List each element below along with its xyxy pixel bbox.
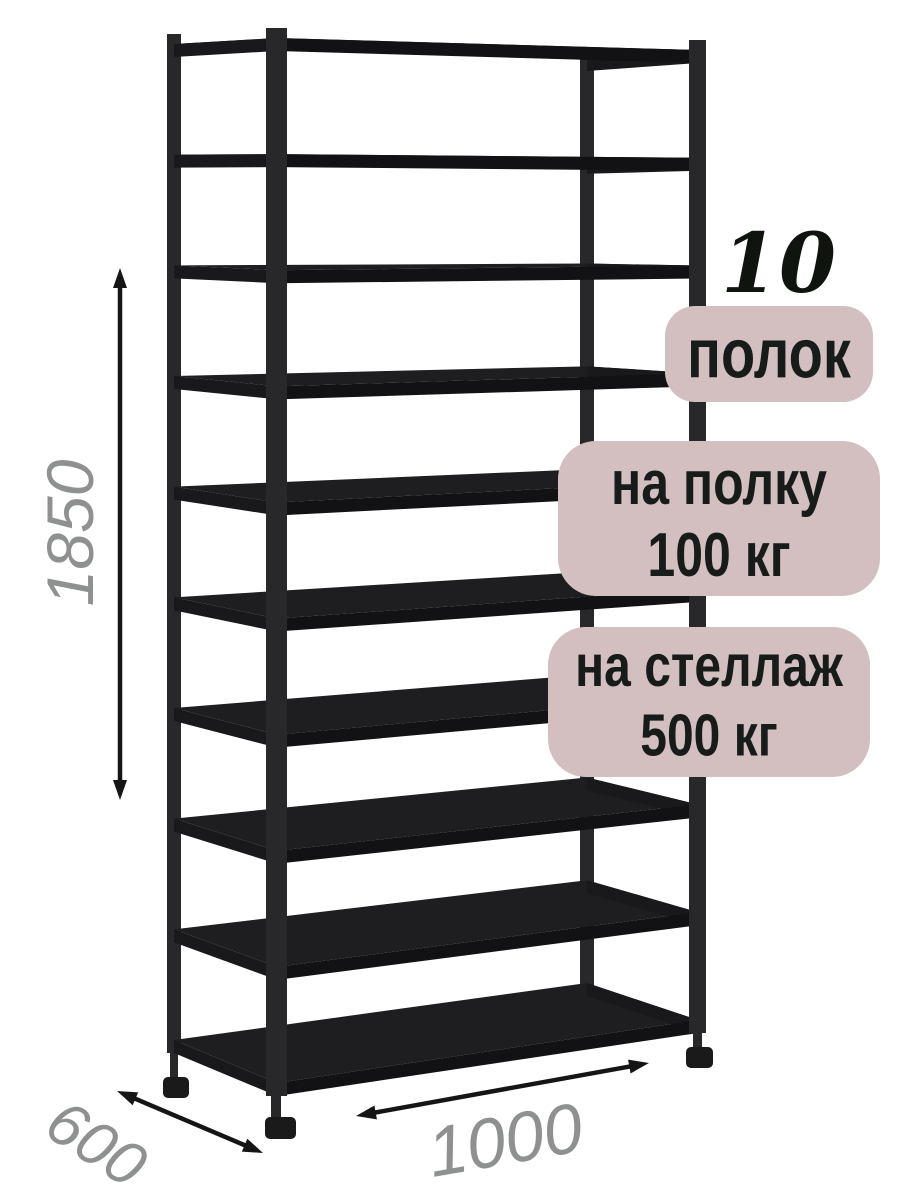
shelf-count-number: 10 [721, 216, 837, 312]
per-rack-load-badge: на стеллаж 500 кг [548, 627, 870, 777]
height-dimension-label: 1850 [32, 460, 108, 607]
shelf-count-badge: полок [665, 306, 873, 402]
per-rack-load-line1: на стеллаж [575, 633, 843, 702]
shelving-rack-illustration [0, 0, 900, 1200]
product-image: 1850 600 1000 10 полок на полку 100 кг н… [0, 0, 900, 1200]
per-shelf-load-line1: на полку [611, 447, 827, 519]
per-shelf-load-line2: 100 кг [611, 519, 827, 591]
per-shelf-load-badge: на полку 100 кг [558, 441, 880, 596]
shelf-count-badge-label: полок [687, 314, 851, 395]
per-rack-load-line2: 500 кг [575, 702, 843, 771]
